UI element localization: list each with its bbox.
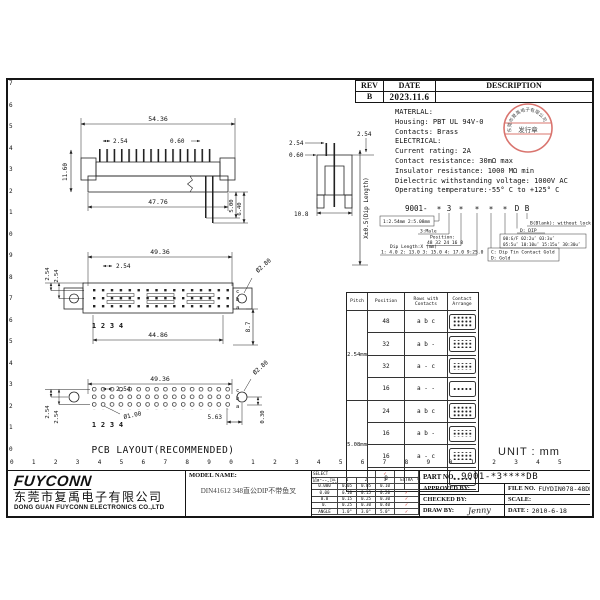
part-code-symbol: * bbox=[437, 205, 442, 214]
pin-number: 3 bbox=[110, 421, 114, 429]
tolerance-table: SELECT ✓ DIM TOL 1 2 3 EXTRA 0.000 0.05 … bbox=[312, 471, 420, 516]
arrange-cell bbox=[448, 333, 476, 355]
contacts-cell: a b c bbox=[405, 311, 448, 333]
contact-arrange-icon bbox=[449, 448, 476, 464]
table-header-position: Position bbox=[368, 293, 405, 311]
dim-label: 8.7 bbox=[245, 321, 252, 332]
arrange-cell bbox=[448, 356, 476, 378]
company-logo: FUYCONN bbox=[13, 474, 92, 490]
spec-line: Contacts: Brass bbox=[395, 128, 590, 138]
dim-label: 10.8 bbox=[294, 211, 309, 218]
dim-label: 5.00 bbox=[229, 199, 235, 212]
contacts-cell: a b - bbox=[405, 333, 448, 355]
dim-label: 2.54 bbox=[116, 386, 131, 393]
dim-label: 0.60 bbox=[170, 138, 185, 145]
side-view-drawing: 2.54 2.54 0.60 10.8 X±0.5(Dip Length) bbox=[289, 131, 374, 265]
tolerance-cell: 3.0° bbox=[357, 509, 376, 515]
file-no-value: FUYDIN078-48DB bbox=[538, 485, 590, 493]
approved-by-label: APPROVED BY: bbox=[420, 484, 504, 495]
model-name-label: MODEL NAME: bbox=[189, 472, 308, 479]
pin-number: 1 bbox=[92, 421, 96, 429]
position-cell: 32 bbox=[368, 333, 405, 355]
arrange-cell bbox=[448, 311, 476, 333]
pin-number: 2 bbox=[101, 322, 105, 330]
pitch-position-table: Pitch Position Rows with Contacts Contac… bbox=[346, 292, 479, 492]
dim-label: 54.36 bbox=[148, 115, 168, 123]
tolerance-cell: 1.0° bbox=[338, 509, 357, 515]
rev-description-value bbox=[436, 92, 592, 103]
contact-arrange-icon bbox=[449, 381, 476, 397]
tolerance-cell: ANGLE bbox=[312, 509, 338, 515]
tolerance-extra-cell: ✓ bbox=[395, 509, 419, 515]
scale-label: SCALE: bbox=[504, 495, 590, 506]
pin-number: 4 bbox=[119, 322, 123, 330]
row-label: b bbox=[236, 297, 239, 303]
arrange-cell bbox=[448, 423, 476, 445]
contacts-cell: a - c bbox=[405, 445, 448, 467]
description-col-header: DESCRIPTION bbox=[436, 81, 592, 92]
dim-label: 2.54 bbox=[45, 405, 51, 419]
dim-label: 44.86 bbox=[148, 331, 168, 339]
pin-number: 3 bbox=[110, 322, 114, 330]
part-code-symbol: * bbox=[475, 205, 480, 214]
tolerance-cell: 5.0° bbox=[376, 509, 395, 515]
position-cell: 24 bbox=[368, 401, 405, 423]
row-label: c bbox=[236, 388, 239, 394]
pcb-layout-drawing: 49.36 2.54 2.54 2.54 Ø1.00 5.63 0.30 Ø2.… bbox=[45, 359, 270, 456]
code-callout: 1: 4.0 2: 13.0 3: 15.0 4: 17.0 9:25.0 bbox=[381, 250, 484, 256]
dim-label: Ø2.80 bbox=[252, 359, 270, 377]
dim-label: 2.54 bbox=[113, 138, 128, 145]
rev-value: B bbox=[356, 92, 384, 103]
contact-arrange-icon bbox=[449, 358, 476, 374]
contact-arrange-icon bbox=[449, 314, 476, 330]
code-callout: Position: bbox=[430, 235, 455, 241]
code-callout: D: DIP bbox=[520, 228, 537, 234]
axis-label: X±0.5(Dip Length) bbox=[363, 177, 370, 238]
dim-label: 2.54 bbox=[289, 140, 304, 147]
part-code-symbol: * bbox=[459, 205, 464, 214]
part-code-symbol: * bbox=[489, 205, 494, 214]
file-no-label: FILE NO. bbox=[508, 485, 535, 492]
front-view-drawing: 54.36 2.54 0.60 11.60 47.76 5.00 6.40 bbox=[62, 115, 248, 223]
company-block: FUYCONN 东莞市复禹电子有限公司 DONG GUAN FUYCONN EL… bbox=[8, 471, 186, 516]
hole-grid bbox=[92, 387, 230, 410]
draw-by-cell: DRAW BY: Jenny bbox=[420, 505, 504, 516]
dim-label: 49.36 bbox=[150, 375, 170, 383]
dim-label: Ø1.00 bbox=[123, 410, 143, 421]
arrange-cell bbox=[448, 445, 476, 467]
arrange-cell bbox=[448, 378, 476, 400]
spec-line: Dielectric withstanding voltage: 1000V A… bbox=[395, 177, 590, 187]
company-name-cn: 东莞市复禹电子有限公司 bbox=[14, 491, 179, 504]
table-header-pitch: Pitch bbox=[347, 293, 368, 311]
code-callout: 05:5u″ 10:10u″ 15:15u″ 30:30u″ bbox=[503, 242, 581, 248]
part-code-symbol: 3 bbox=[447, 204, 452, 213]
contacts-cell: a - - bbox=[405, 378, 448, 400]
part-no-value: 9001-*3****DB bbox=[461, 472, 538, 482]
pin-number: 1 bbox=[92, 322, 96, 330]
table-header-rows: Rows with Contacts bbox=[405, 293, 448, 311]
signoff-grid: APPROVED BY: FILE NO. FUYDIN078-48DB CHE… bbox=[420, 484, 590, 516]
tolerance-dim-tol-cell: DIM TOL bbox=[312, 478, 338, 485]
dim-label: 0.60 bbox=[289, 152, 304, 159]
contact-grid bbox=[93, 289, 229, 313]
code-callout: 1:2.54mm 2:5.08mm bbox=[383, 219, 430, 225]
row-label: b bbox=[236, 396, 239, 402]
spec-line: Contact resistance: 30mΩ max bbox=[395, 157, 590, 167]
position-cell: 48 bbox=[368, 311, 405, 333]
part-code-symbol: D bbox=[515, 204, 520, 213]
contact-arrange-icon bbox=[449, 403, 476, 419]
dim-label: 5.63 bbox=[208, 414, 223, 421]
pcb-caption: PCB LAYOUT(RECOMMENDED) bbox=[91, 445, 234, 456]
part-no-label: PART NO. bbox=[423, 473, 455, 481]
dim-label: 6.40 bbox=[237, 202, 243, 215]
part-code-symbol: * bbox=[503, 205, 508, 214]
position-cell: 16 bbox=[368, 423, 405, 445]
row-label: c bbox=[236, 289, 239, 295]
dim-label: 2.54 bbox=[116, 263, 131, 270]
date-label: DATE : bbox=[508, 507, 529, 514]
contacts-cell: a - c bbox=[405, 356, 448, 378]
contact-arrange-icon bbox=[449, 426, 476, 442]
spec-line: Current rating: 2A bbox=[395, 147, 590, 157]
position-cell: 16 bbox=[368, 445, 405, 467]
contacts-cell: a b - bbox=[405, 423, 448, 445]
top-view-drawing: 49.36 2.54 2.54 2.54 Ø2.80 44.86 8.7 c b… bbox=[45, 248, 273, 345]
dim-label: DIM bbox=[313, 479, 319, 484]
part-info-block: PART NO. 9001-*3****DB APPROVED BY: FILE… bbox=[420, 471, 590, 516]
part-code-base: 9001- bbox=[405, 204, 428, 213]
material-spec-block: MATERLAL: Housing: PBT UL 94V-0 Contacts… bbox=[395, 108, 590, 196]
contact-arrange-icon bbox=[449, 336, 476, 352]
code-callout: D: Gold bbox=[491, 256, 511, 262]
model-name-value: DIN41612 348直公DIP不带鱼叉 bbox=[189, 486, 308, 496]
part-code-symbol: B bbox=[525, 204, 530, 213]
model-name-block: MODEL NAME: DIN41612 348直公DIP不带鱼叉 bbox=[186, 471, 312, 516]
part-code-diagram: 9001- * 3 * * * * D B 1:2.54mm 2:5.08mm … bbox=[380, 204, 591, 262]
date-value: 2010-6-18 bbox=[532, 507, 567, 515]
contacts-cell: a b c bbox=[405, 401, 448, 423]
spec-line: Housing: PBT UL 94V-0 bbox=[395, 118, 590, 128]
title-block: FUYCONN 东莞市复禹电子有限公司 DONG GUAN FUYCONN EL… bbox=[8, 470, 590, 516]
tol-label: TOL bbox=[330, 478, 336, 483]
file-no-cell: FILE NO. FUYDIN078-48DB bbox=[504, 484, 590, 495]
row-label: a bbox=[236, 404, 239, 410]
dim-label: 0.30 bbox=[260, 410, 266, 423]
position-cell: 16 bbox=[368, 378, 405, 400]
position-cell: 32 bbox=[368, 356, 405, 378]
spec-line: Insulator resistance: 1000 MΩ min bbox=[395, 167, 590, 177]
spec-line: MATERLAL: bbox=[395, 108, 590, 118]
checked-by-label: CHECKED BY: bbox=[420, 495, 504, 506]
dim-label: 2.54 bbox=[45, 267, 51, 281]
spec-line: ELECTRICAL: bbox=[395, 137, 590, 147]
code-callout: 00:G/F 02:2u″ 03:3u″ bbox=[503, 236, 555, 242]
engineering-drawing-sheet: 765432109876543210 012345678901234567890… bbox=[0, 0, 600, 600]
date-col-header: DATE bbox=[384, 81, 436, 92]
row-label: a bbox=[236, 305, 239, 311]
unit-label: UNIT : mm bbox=[498, 446, 560, 458]
revision-table: REV DATE DESCRIPTION B 2023.11.6 bbox=[355, 80, 593, 103]
code-callout: Dip Length:X (mm) bbox=[390, 244, 437, 250]
dim-label: 2.54 bbox=[54, 410, 60, 424]
rev-col-header: REV bbox=[356, 81, 384, 92]
dim-label: 2.54 bbox=[54, 269, 60, 283]
dim-label: 49.36 bbox=[150, 248, 170, 256]
dim-label: 11.60 bbox=[62, 163, 69, 181]
code-callout: C: Dip Tin Contact Gold bbox=[491, 250, 555, 256]
code-callout: 3:Male bbox=[420, 229, 437, 235]
company-name-en: DONG GUAN FUYCONN ELECTRONICS CO.,LTD bbox=[14, 504, 179, 512]
table-header-arrange: Contact Arrange bbox=[448, 293, 476, 311]
code-callout: B(Blank): without lock bbox=[530, 221, 591, 227]
dim-label: 47.76 bbox=[148, 198, 168, 206]
dim-label: 2.54 bbox=[357, 131, 372, 138]
pitch-group-cell: 2.54mm bbox=[347, 311, 368, 401]
pin-number: 4 bbox=[119, 421, 123, 429]
pin-number: 2 bbox=[101, 421, 105, 429]
draw-by-signature: Jenny bbox=[468, 506, 491, 516]
part-no-row: PART NO. 9001-*3****DB bbox=[420, 471, 590, 484]
dim-label: Ø2.80 bbox=[255, 257, 273, 275]
pin-row bbox=[99, 149, 216, 162]
date-cell: DATE : 2010-6-18 bbox=[504, 505, 590, 516]
draw-by-label: DRAW BY: bbox=[423, 507, 454, 514]
rev-date-value: 2023.11.6 bbox=[384, 92, 436, 103]
arrange-cell bbox=[448, 401, 476, 423]
spec-line: Operating temperature:-55° C to +125° C bbox=[395, 186, 590, 196]
